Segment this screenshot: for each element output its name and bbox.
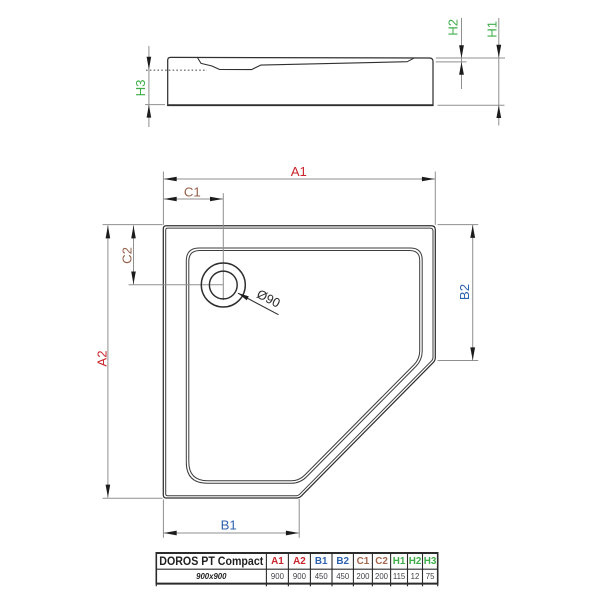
svg-text:B2: B2 bbox=[457, 284, 472, 300]
svg-text:A2: A2 bbox=[293, 556, 306, 567]
svg-text:H1: H1 bbox=[485, 21, 500, 38]
svg-text:B1: B1 bbox=[315, 556, 328, 567]
svg-text:C1: C1 bbox=[357, 556, 370, 567]
svg-text:H3: H3 bbox=[133, 80, 148, 97]
svg-text:A1: A1 bbox=[271, 556, 284, 567]
svg-text:900: 900 bbox=[271, 572, 285, 581]
svg-text:C1: C1 bbox=[184, 185, 201, 200]
svg-text:200: 200 bbox=[356, 572, 370, 581]
svg-text:115: 115 bbox=[393, 572, 406, 581]
svg-text:H1: H1 bbox=[393, 556, 406, 567]
svg-text:A2: A2 bbox=[95, 350, 110, 366]
svg-text:12: 12 bbox=[411, 572, 420, 581]
svg-text:C2: C2 bbox=[120, 247, 135, 264]
svg-text:450: 450 bbox=[315, 572, 329, 581]
svg-text:H2: H2 bbox=[446, 19, 461, 36]
svg-text:B2: B2 bbox=[336, 556, 349, 567]
svg-text:900: 900 bbox=[293, 572, 307, 581]
svg-text:H2: H2 bbox=[409, 556, 422, 567]
svg-text:75: 75 bbox=[426, 572, 435, 581]
svg-text:H3: H3 bbox=[424, 556, 437, 567]
svg-text:A1: A1 bbox=[291, 164, 307, 179]
svg-text:DOROS PT Compact: DOROS PT Compact bbox=[159, 554, 263, 568]
svg-text:B1: B1 bbox=[221, 518, 237, 533]
svg-text:C2: C2 bbox=[375, 556, 388, 567]
svg-text:900x900: 900x900 bbox=[196, 572, 227, 581]
svg-text:200: 200 bbox=[375, 572, 389, 581]
svg-text:450: 450 bbox=[336, 572, 350, 581]
